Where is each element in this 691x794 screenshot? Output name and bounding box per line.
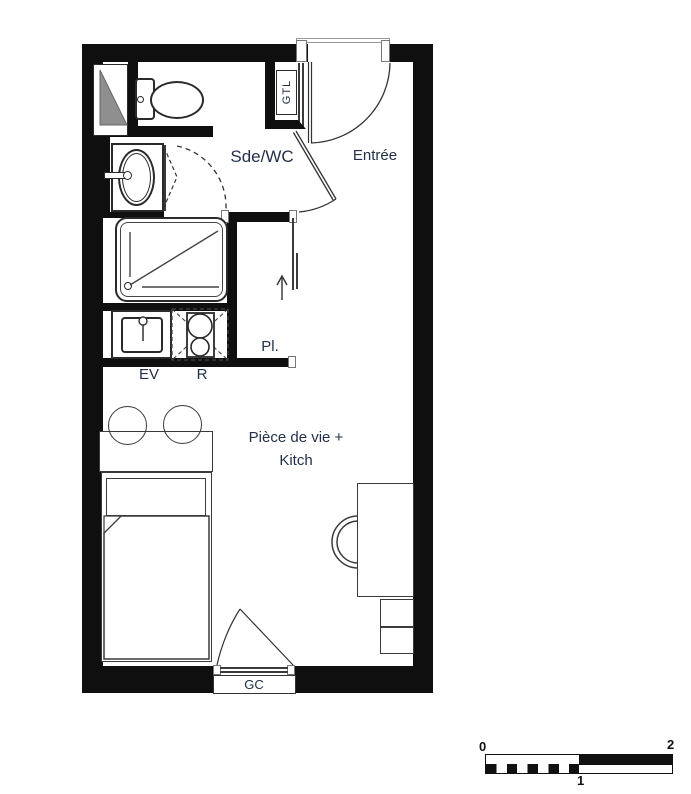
- pillow-circle-1: [108, 406, 147, 445]
- room-label-living-1: Pièce de vie +: [249, 429, 344, 446]
- shower-right-wall: [227, 222, 237, 365]
- chair-outer-arc: [332, 516, 358, 568]
- entry-left-jamb: [296, 40, 307, 62]
- fixture-label-gtl: GTL: [281, 80, 293, 104]
- gtl-door-line-2: [302, 63, 304, 127]
- gc-window-line-2: [220, 671, 288, 673]
- kitchen-sink-basin: [121, 317, 163, 353]
- duct-shaft: [93, 64, 128, 136]
- fixture-label-sink: EV: [139, 366, 159, 383]
- scale-bar-checker: [486, 764, 579, 773]
- room-label-bathroom: Sde/WC: [230, 147, 293, 167]
- desk: [357, 483, 414, 597]
- storage-unit-top: [380, 599, 414, 627]
- kitchen-bottom-wall: [93, 358, 295, 367]
- scale-number-start: 0: [479, 739, 486, 754]
- scale-number-end: 2: [667, 737, 674, 752]
- scale-bar-top-black: [579, 755, 672, 764]
- cooktop-x-1: [172, 309, 228, 360]
- cooktop-burner-large: [188, 314, 212, 338]
- bottom-wall-left: [82, 666, 213, 693]
- bathroom-door-panel-line: [164, 145, 166, 211]
- gtl-door-line-1: [298, 63, 300, 127]
- cooktop-burner-small: [191, 338, 209, 356]
- bathroom-door-fold-dashed: [164, 147, 177, 207]
- closet-sliding-door-1: [292, 218, 294, 290]
- bathroom-door-arc: [299, 199, 336, 212]
- entry-door-arc: [311, 63, 390, 143]
- bathroom-door-leaf-2: [293, 133, 333, 201]
- bathroom-closet-wall: [227, 212, 293, 222]
- bottom-wall-right: [295, 666, 433, 693]
- shower-tray-inner: [120, 222, 223, 297]
- entry-lintel: [296, 38, 390, 43]
- pillow-circle-2: [163, 405, 202, 444]
- cooktop-dashed-box: [172, 309, 228, 360]
- bathroom-swing-dashed-arc: [177, 146, 226, 209]
- storage-unit-bottom: [380, 627, 414, 654]
- shower-drain: [124, 282, 132, 290]
- closet-sliding-door-2: [296, 253, 298, 289]
- room-label-living-2: Kitch: [279, 452, 312, 469]
- cooktop-x-2: [172, 309, 228, 360]
- kitchen-wall-cap: [288, 356, 296, 368]
- bed-pillow-rect: [106, 478, 206, 516]
- gc-swing-leaf: [240, 609, 293, 665]
- room-label-entry: Entrée: [353, 147, 397, 164]
- gc-window-line-1: [220, 667, 288, 669]
- scale-bar: [485, 754, 673, 774]
- washbasin-faucet-knob: [123, 171, 132, 180]
- gtl-left-wall: [265, 62, 275, 120]
- scale-number-mid: 1: [577, 773, 584, 788]
- gtl-bottom-wall: [265, 120, 306, 129]
- gc-jamb-right: [287, 665, 295, 675]
- closet-arrow-head: [277, 276, 287, 285]
- toilet-flush-button: [137, 96, 144, 103]
- top-wall-left: [82, 44, 308, 62]
- gc-swing-arc: [217, 609, 240, 665]
- fixture-label-cooktop: R: [197, 366, 208, 383]
- cooktop-body: [187, 313, 214, 357]
- fixture-label-gc: GC: [244, 677, 264, 692]
- toilet-bowl: [150, 81, 204, 119]
- right-wall: [413, 44, 433, 693]
- chair-inner-arc: [337, 521, 358, 563]
- floor-plan: Sde/WC Entrée Pl. EV R Pièce de vie + Ki…: [0, 0, 691, 794]
- entry-right-jamb: [381, 40, 390, 62]
- bathroom-door-leaf-1: [296, 131, 336, 199]
- room-label-closet: Pl.: [261, 338, 279, 355]
